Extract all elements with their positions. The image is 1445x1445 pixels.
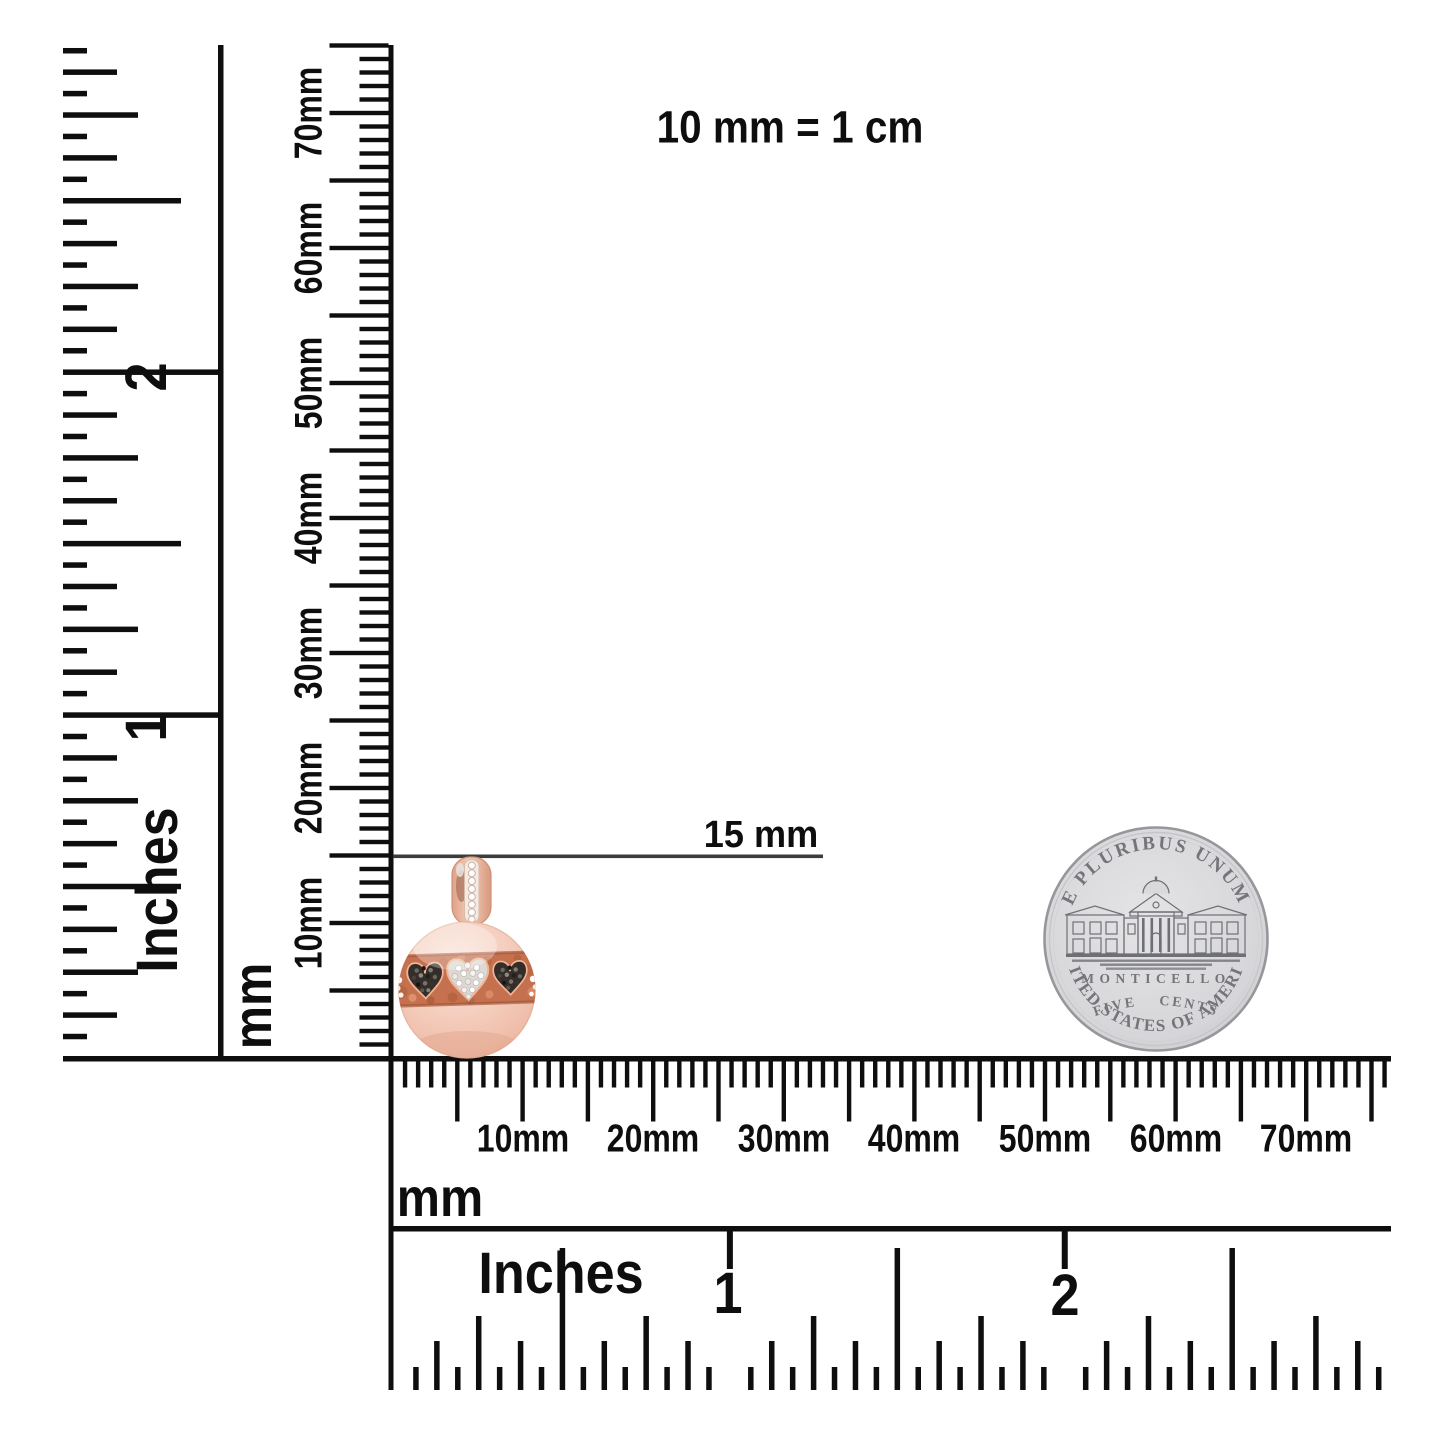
ruler-tick — [651, 1062, 655, 1122]
bottom-inches-number-2: 2 — [1050, 1267, 1079, 1325]
ruler-tick — [63, 584, 117, 590]
ruler-tick — [1043, 1062, 1047, 1122]
bottom-mm-label-40: 40mm — [868, 1120, 960, 1159]
ruler-tick — [912, 1062, 916, 1122]
ruler-tick — [1147, 1062, 1151, 1088]
ruler-tick — [360, 907, 389, 911]
ruler-tick — [1271, 1341, 1277, 1390]
ruler-topline — [393, 1056, 1391, 1062]
ruler-tick — [1167, 1367, 1173, 1390]
ruler-tick — [494, 1062, 498, 1088]
ruler-tick — [429, 1062, 433, 1088]
ruler-tick — [360, 70, 389, 74]
ruler-tick — [1239, 1062, 1243, 1122]
ruler-tick — [811, 1316, 817, 1390]
ruler-tick — [360, 813, 389, 817]
ruler-tick — [1265, 1062, 1269, 1088]
ruler-tick — [360, 273, 389, 277]
ruler-tick — [63, 198, 181, 204]
ruler-tick — [1369, 1062, 1373, 1122]
ruler-tick — [360, 394, 389, 398]
scale-note: 10 mm = 1 cm — [657, 105, 924, 150]
ruler-tick — [63, 284, 138, 290]
ruler-tick — [360, 975, 389, 979]
ruler-tick — [716, 1062, 720, 1122]
ruler-tick — [63, 477, 87, 483]
ruler-tick — [468, 1062, 472, 1088]
ruler-tick — [403, 1062, 407, 1088]
ruler-tick — [1069, 1062, 1073, 1088]
ruler-tick — [434, 1341, 440, 1390]
ruler-tick — [416, 1062, 420, 1088]
bottom-mm-label-70: 70mm — [1260, 1120, 1352, 1159]
ruler-tick — [360, 637, 389, 641]
ruler-tick — [330, 988, 389, 992]
ruler-tick — [360, 664, 389, 668]
ruler-tick — [1292, 1367, 1298, 1390]
ruler-tick — [1200, 1062, 1204, 1088]
ruler-tick — [1343, 1062, 1347, 1088]
ruler-tick — [63, 691, 87, 697]
bottom-mm-label-10: 10mm — [477, 1120, 569, 1159]
ruler-tick — [677, 1062, 681, 1088]
ruler-tick — [455, 1062, 459, 1122]
ruler-tick — [360, 489, 389, 493]
ruler-tick — [360, 894, 389, 898]
ruler-tick — [748, 1367, 754, 1390]
ruler-tick — [790, 1367, 796, 1390]
ruler-tick — [1330, 1062, 1334, 1088]
bottom-inches-number-1: 1 — [713, 1265, 742, 1323]
ruler-tick — [63, 391, 87, 397]
ruler-tick — [612, 1062, 616, 1088]
ruler-tick — [63, 991, 87, 997]
left-mm-ruler — [330, 43, 394, 1390]
ruler-tick — [360, 529, 389, 533]
ruler-tick — [1125, 1367, 1131, 1390]
ruler-tick — [63, 241, 117, 247]
charm-bail — [452, 857, 491, 925]
ruler-tick — [63, 627, 138, 633]
ruler-tick — [978, 1316, 984, 1390]
ruler-tick — [63, 1012, 117, 1018]
bottom-inches-unit: Inches — [478, 1245, 643, 1303]
ruler-tick — [360, 462, 389, 466]
ruler-tick — [782, 1062, 786, 1122]
ruler-tick — [581, 1367, 587, 1390]
ruler-tick — [360, 475, 389, 479]
ruler-tick — [729, 1062, 733, 1088]
ruler-tick — [964, 1062, 968, 1088]
ruler-tick — [1313, 1316, 1319, 1390]
ruler-tick — [360, 421, 389, 425]
ruler-tick — [360, 151, 389, 155]
ruler-tick — [63, 755, 117, 761]
ruler-tick — [360, 867, 389, 871]
ruler-tick — [539, 1367, 545, 1390]
ruler-tick — [63, 669, 117, 675]
ruler-tick — [63, 327, 117, 333]
ruler-tick — [1030, 1062, 1034, 1088]
ruler-tick — [547, 1062, 551, 1088]
ruler-tick — [63, 819, 87, 825]
ruler-tick — [360, 597, 389, 601]
ruler-tick — [63, 91, 87, 97]
ruler-tick — [360, 826, 389, 830]
ruler-tick — [1056, 1062, 1060, 1088]
ruler-tick — [1017, 1062, 1021, 1088]
bottom-mm-label-50: 50mm — [999, 1120, 1091, 1159]
ruler-tick — [330, 718, 389, 722]
ruler-tick — [63, 562, 87, 568]
ruler-tick — [360, 880, 389, 884]
bottom-mm-label-20: 20mm — [607, 1120, 699, 1159]
ruler-tick — [664, 1367, 670, 1390]
ruler-tick — [1213, 1062, 1217, 1088]
left-mm-unit: mm — [226, 963, 280, 1049]
ruler-tick — [330, 448, 389, 452]
ruler-tick — [63, 305, 87, 311]
ruler-tick — [874, 1367, 880, 1390]
ruler-tick — [63, 134, 87, 140]
ruler-tick — [520, 1062, 524, 1122]
bottom-mm-label-60: 60mm — [1130, 1120, 1222, 1159]
ruler-edge-line — [389, 45, 394, 1390]
ruler-tick — [991, 1062, 995, 1088]
ruler-tick — [63, 798, 138, 804]
ruler-tick — [360, 84, 389, 88]
left-mm-label-70: 70mm — [290, 67, 329, 159]
ruler-tick — [1146, 1316, 1152, 1390]
coin-building-label: MONTICELLO — [1081, 971, 1231, 986]
ruler-tick — [1041, 1367, 1047, 1390]
ruler-tick — [63, 219, 87, 225]
ruler-tick — [847, 1062, 851, 1122]
ruler-tick — [360, 219, 389, 223]
ruler-tick — [63, 777, 87, 783]
ruler-tick — [1382, 1062, 1386, 1088]
ruler-tick — [873, 1062, 877, 1088]
ruler-tick — [573, 1062, 577, 1088]
ruler-tick — [63, 519, 87, 525]
ruler-tick — [360, 97, 389, 101]
ruler-tick — [330, 921, 389, 925]
ruler-tick — [706, 1367, 712, 1390]
left-mm-label-50: 50mm — [290, 337, 329, 429]
ruler-tick — [938, 1062, 942, 1088]
left-inches-number-1: 1 — [118, 712, 176, 741]
ruler-tick — [330, 583, 389, 587]
ruler-tick — [63, 734, 87, 740]
ruler-tick — [63, 434, 87, 440]
product-measurement-image: E PLURIBUS UNUM MONTICELLO FIVE CENTS UN… — [0, 0, 1445, 1445]
ruler-tick — [1188, 1341, 1194, 1390]
ruler-tick — [360, 624, 389, 628]
left-inches-number-2: 2 — [118, 362, 176, 391]
ruler-tick — [455, 1367, 461, 1390]
left-inches-ruler — [63, 45, 395, 1062]
ruler-tick — [1250, 1367, 1256, 1390]
ruler-tick — [978, 1062, 982, 1122]
charm-band — [392, 922, 542, 1063]
ruler-tick — [360, 543, 389, 547]
ruler-tick — [360, 232, 389, 236]
ruler-tick — [507, 1062, 511, 1088]
ruler-tick — [360, 772, 389, 776]
ruler-tick — [360, 502, 389, 506]
ruler-tick — [622, 1367, 628, 1390]
ruler-tick — [1083, 1367, 1089, 1390]
ruler-baseline — [63, 1056, 395, 1062]
ruler-tick — [360, 138, 389, 142]
ruler-tick — [690, 1062, 694, 1088]
ruler-tick — [925, 1062, 929, 1088]
ruler-tick — [360, 192, 389, 196]
ruler-tick — [360, 327, 389, 331]
ruler-tick — [360, 259, 389, 263]
nickel-coin: E PLURIBUS UNUM MONTICELLO FIVE CENTS UN… — [0, 0, 1268, 1051]
ruler-tick — [664, 1062, 668, 1088]
ruler-tick — [360, 948, 389, 952]
ruler-tick — [1004, 1062, 1008, 1088]
ruler-tick — [442, 1062, 446, 1088]
ruler-tick — [63, 455, 138, 461]
ruler-tick — [599, 1062, 603, 1088]
ruler-tick — [63, 948, 87, 954]
ruler-tick — [360, 840, 389, 844]
ruler-tick — [1095, 1062, 1099, 1088]
ruler-tick — [1334, 1367, 1340, 1390]
ruler-tick — [899, 1062, 903, 1088]
ruler-tick — [886, 1062, 890, 1088]
ruler-tick — [360, 570, 389, 574]
ruler-tick — [360, 799, 389, 803]
left-mm-label-10: 10mm — [290, 877, 329, 969]
ruler-tick — [330, 516, 389, 520]
ruler-tick — [936, 1341, 942, 1390]
ruler-tick — [1226, 1062, 1230, 1088]
ruler-tick — [360, 408, 389, 412]
ruler-tick — [685, 1341, 691, 1390]
ruler-tick — [1104, 1341, 1110, 1390]
ruler-tick — [1108, 1062, 1112, 1122]
ruler-tick — [360, 961, 389, 965]
ruler-tick — [1229, 1248, 1235, 1390]
ruler-tick — [1160, 1062, 1164, 1088]
ruler-tick — [360, 556, 389, 560]
ruler-tick — [330, 381, 389, 385]
ruler-tick — [63, 862, 87, 868]
ruler-tick — [63, 177, 87, 183]
ruler-tick — [360, 745, 389, 749]
ruler-tick — [63, 412, 117, 418]
ruler-tick — [360, 165, 389, 169]
ruler-tick — [63, 605, 87, 611]
ruler-tick — [360, 354, 389, 358]
ruler-tick — [330, 853, 389, 857]
ruler-edge-line — [218, 45, 224, 1062]
ruler-tick — [821, 1062, 825, 1088]
ruler-tick — [643, 1316, 649, 1390]
ruler-tick — [518, 1341, 524, 1390]
graphics-layer: E PLURIBUS UNUM MONTICELLO FIVE CENTS UN… — [0, 0, 1445, 1445]
ruler-tick — [1186, 1062, 1190, 1088]
ruler-tick — [481, 1062, 485, 1088]
ruler-tick — [1355, 1341, 1361, 1390]
ruler-tick — [602, 1341, 608, 1390]
ruler-tick — [360, 759, 389, 763]
ruler-tick — [360, 124, 389, 128]
ruler-tick — [834, 1062, 838, 1088]
ruler-tick — [832, 1367, 838, 1390]
ruler-tick — [360, 934, 389, 938]
ruler-tick — [742, 1062, 746, 1088]
ruler-tick — [330, 246, 389, 250]
measurement-label: 15 mm — [704, 816, 818, 854]
ruler-tick — [895, 1248, 901, 1390]
ruler-tick — [360, 367, 389, 371]
ruler-tick — [63, 48, 87, 54]
ruler-tick — [1376, 1367, 1382, 1390]
ruler-tick — [638, 1062, 642, 1088]
ruler-tick — [1356, 1062, 1360, 1088]
ruler-tick — [360, 691, 389, 695]
ruler-tick — [63, 155, 117, 161]
ruler-tick — [1134, 1062, 1138, 1088]
ruler-tick — [769, 1341, 775, 1390]
charm-pendant — [392, 857, 542, 1063]
ruler-tick — [330, 313, 389, 317]
left-inches-unit: Inches — [129, 807, 187, 972]
ruler-tick — [360, 1042, 389, 1046]
ruler-tick — [330, 111, 389, 115]
ruler-tick — [330, 651, 389, 655]
ruler-tick — [63, 541, 181, 547]
ruler-tick — [63, 1034, 87, 1040]
ruler-tick — [360, 300, 389, 304]
ruler-tick — [476, 1316, 482, 1390]
ruler-tick — [625, 1062, 629, 1088]
ruler-tick — [1082, 1062, 1086, 1088]
ruler-tick — [957, 1367, 963, 1390]
ruler-tick — [1209, 1367, 1215, 1390]
ruler-tick — [63, 905, 87, 911]
ruler-tick — [795, 1062, 799, 1088]
ruler-tick — [63, 112, 138, 118]
ruler-tick — [533, 1062, 537, 1088]
ruler-tick — [360, 678, 389, 682]
ruler-tick — [1121, 1062, 1125, 1088]
ruler-tick — [63, 348, 87, 354]
ruler-tick — [1252, 1062, 1256, 1088]
ruler-tick — [360, 435, 389, 439]
ruler-tick — [999, 1367, 1005, 1390]
ruler-tick — [330, 786, 389, 790]
ruler-tick — [63, 69, 117, 75]
ruler-tick — [586, 1062, 590, 1122]
ruler-tick — [330, 43, 389, 47]
ruler-tick — [1020, 1341, 1026, 1390]
left-mm-label-60: 60mm — [290, 202, 329, 294]
ruler-tick — [360, 205, 389, 209]
ruler-tick — [360, 1002, 389, 1006]
ruler-tick — [1173, 1062, 1177, 1122]
ruler-tick — [769, 1062, 773, 1088]
ruler-tick — [360, 705, 389, 709]
ruler-tick — [360, 286, 389, 290]
ruler-tick — [330, 178, 389, 182]
ruler-tick — [1291, 1062, 1295, 1088]
ruler-tick — [63, 262, 87, 268]
ruler-tick — [360, 340, 389, 344]
ruler-tick — [1317, 1062, 1321, 1088]
ruler-tick — [63, 927, 117, 933]
ruler-tick — [360, 732, 389, 736]
ruler-tick — [63, 498, 117, 504]
ruler-tick — [63, 841, 117, 847]
ruler-tick — [853, 1341, 859, 1390]
ruler-tick — [1278, 1062, 1282, 1088]
bottom-mm-unit: mm — [397, 1171, 483, 1225]
ruler-tick — [360, 1029, 389, 1033]
ruler-tick — [1304, 1062, 1308, 1122]
ruler-tick — [808, 1062, 812, 1088]
left-mm-label-20: 20mm — [290, 742, 329, 834]
ruler-tick — [755, 1062, 759, 1088]
ruler-tick — [413, 1367, 419, 1390]
ruler-tick — [360, 57, 389, 61]
ruler-tick — [360, 610, 389, 614]
ruler-tick — [360, 1015, 389, 1019]
ruler-tick — [560, 1062, 564, 1088]
ruler-tick — [860, 1062, 864, 1088]
bottom-mm-label-30: 30mm — [738, 1120, 830, 1159]
ruler-tick — [63, 648, 87, 654]
left-mm-label-30: 30mm — [290, 607, 329, 699]
ruler-tick — [703, 1062, 707, 1088]
left-mm-label-40: 40mm — [290, 472, 329, 564]
ruler-tick — [916, 1367, 922, 1390]
ruler-tick — [497, 1367, 503, 1390]
ruler-bottomline — [393, 1226, 1391, 1232]
ruler-tick — [951, 1062, 955, 1088]
